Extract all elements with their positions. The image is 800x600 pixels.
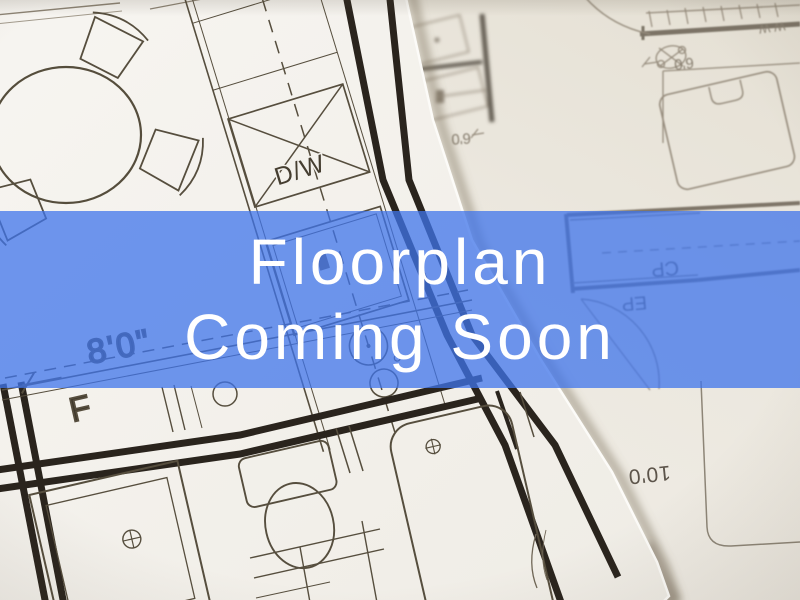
banner-title-line2: Coming Soon [184, 300, 616, 375]
photo-top-shade [0, 0, 800, 16]
coming-soon-banner: Floorplan Coming Soon [0, 211, 800, 388]
floorplan-photo: W W 6'0 6'0 [0, 0, 800, 600]
banner-title-line1: Floorplan [249, 225, 552, 300]
